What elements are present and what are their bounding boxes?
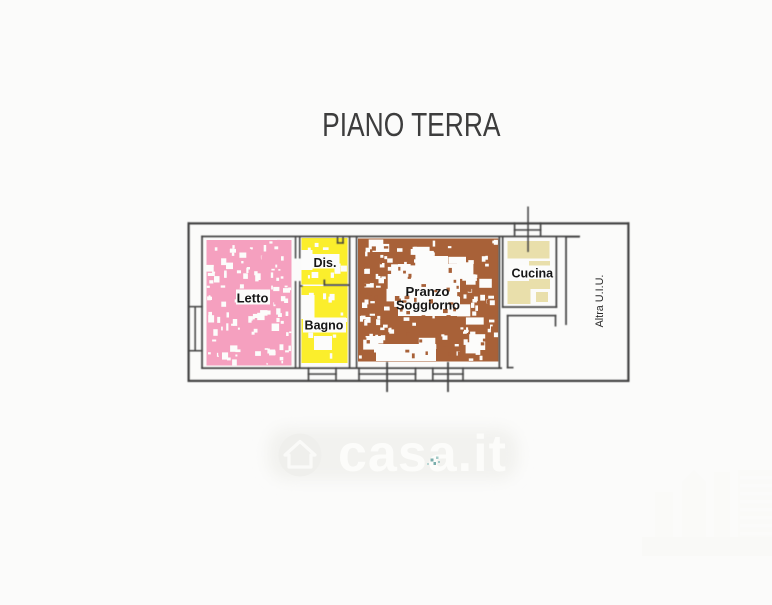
svg-text:Bagno: Bagno [305,319,344,333]
svg-text:Dis.: Dis. [314,256,337,270]
svg-text:Soggiorno: Soggiorno [396,298,460,313]
svg-text:Letto: Letto [237,291,269,306]
svg-text:Altra U.I.U.: Altra U.I.U. [594,275,606,328]
svg-text:PIANO TERRA: PIANO TERRA [322,107,501,144]
svg-text:casa.it: casa.it [338,425,507,483]
svg-text:Cucina: Cucina [511,267,554,281]
